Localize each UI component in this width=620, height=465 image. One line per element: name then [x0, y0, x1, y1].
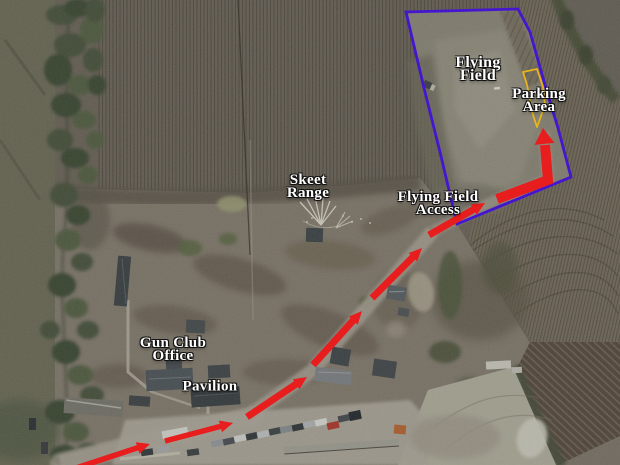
label-line: Field — [455, 69, 500, 82]
label-flying-field: Flying Field — [455, 56, 500, 82]
label-line: Range — [287, 187, 329, 200]
label-line: Pavilion — [183, 381, 238, 394]
label-line: Area — [512, 101, 566, 114]
label-line: Access — [398, 204, 479, 217]
label-gun-club-office: Gun Club Office — [140, 337, 206, 363]
aerial-map: Flying Field Parking Area Skeet Range Fl… — [0, 0, 620, 465]
label-skeet-range: Skeet Range — [287, 174, 329, 200]
label-pavilion: Pavilion — [183, 381, 238, 394]
label-parking-area: Parking Area — [512, 88, 566, 114]
label-line: Office — [140, 350, 206, 363]
aerial-photo — [0, 0, 620, 465]
label-flying-field-access: Flying Field Access — [398, 191, 479, 217]
